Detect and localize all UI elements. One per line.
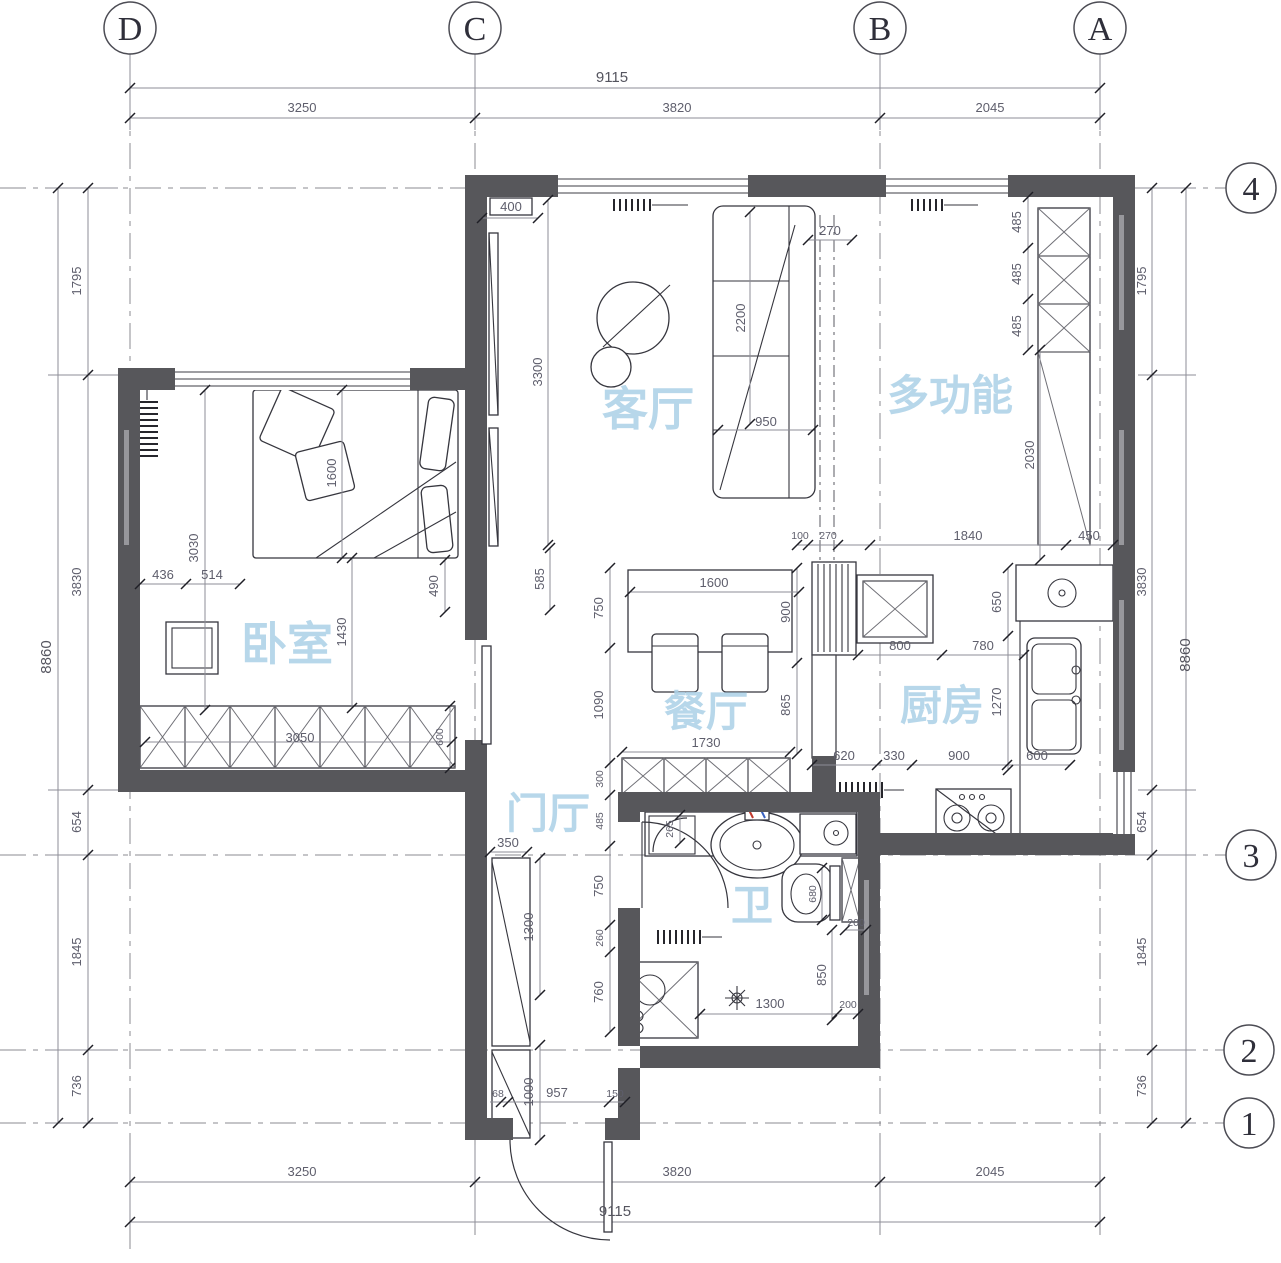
bedroom-sliding-door-icon (482, 646, 491, 744)
dim-tv-400: 400 (500, 199, 522, 214)
room-label-multi: 多功能 (887, 372, 1013, 419)
sofa-icon (713, 206, 815, 498)
bath-radiator-icon (658, 930, 722, 944)
dim-right-total: 8860 (1177, 638, 1194, 671)
dim-bed-490: 490 (426, 575, 441, 597)
dim-top-ba: 2045 (976, 100, 1005, 115)
room-label-living: 客厅 (602, 383, 694, 435)
dim-left-total: 8860 (38, 640, 55, 673)
dim-bed-585: 585 (532, 568, 547, 590)
dim-kitchen-650: 650 (989, 591, 1004, 613)
bath-cabinet-icon (842, 858, 860, 922)
dim-left-1845: 1845 (69, 938, 84, 967)
dim-right-736: 736 (1134, 1075, 1149, 1097)
dim-bath-265: 265 (664, 820, 676, 838)
dim-bath-750: 750 (591, 875, 606, 897)
grid-label-row-3: 3 (1243, 838, 1260, 875)
dim-right-3830: 3830 (1134, 568, 1149, 597)
dim-dining-865: 865 (778, 694, 793, 716)
floor-plan-drawing: D C B A 4 3 2 1 9115 3250 3820 2045 3250… (0, 0, 1281, 1263)
tv-panel-icon (489, 233, 498, 546)
dim-left-736: 736 (69, 1075, 84, 1097)
fridge-icon (857, 575, 933, 643)
living-window-icon (558, 175, 748, 211)
kitchen-window-icon (1113, 772, 1135, 834)
dim-bath-200b: 200 (839, 999, 857, 1011)
double-sink-icon (1027, 638, 1081, 754)
dim-entry-957: 957 (546, 1085, 568, 1100)
dim-kitchen-1270: 1270 (989, 688, 1004, 717)
dim-kitchen-330: 330 (883, 748, 905, 763)
dim-bath-260: 260 (594, 929, 606, 947)
dim-bed-3030: 3030 (186, 534, 201, 563)
dim-dining-300: 300 (594, 770, 606, 788)
dim-bath-1300: 1300 (756, 996, 785, 1011)
dim-bed-wardrobe-3050: 3050 (286, 730, 315, 745)
dim-entry-150: 150 (606, 1088, 624, 1100)
dim-bed-436: 436 (152, 567, 174, 582)
dim-bath-760: 760 (591, 981, 606, 1003)
dim-stub-100: 100 (791, 530, 809, 542)
bedroom-window-icon (175, 368, 410, 390)
dim-right-1845: 1845 (1134, 938, 1149, 967)
dim-hall-1000: 1000 (521, 1078, 536, 1107)
room-label-bath: 卫 (731, 882, 773, 929)
dim-multi-2030: 2030 (1022, 441, 1037, 470)
dim-left-654: 654 (69, 811, 84, 833)
dim-kitchen-620: 620 (833, 748, 855, 763)
dim-kitchen-600: 600 (1026, 748, 1048, 763)
dim-stub-270: 270 (819, 530, 837, 542)
dim-multi-1840: 1840 (954, 528, 983, 543)
dim-bath-680: 680 (807, 885, 819, 903)
bed-icon (253, 387, 458, 558)
sliding-door-icon (812, 562, 856, 655)
sideboard-icon (622, 758, 790, 794)
grid-label-col-b: B (869, 11, 892, 48)
dim-multi-485c: 485 (1009, 315, 1024, 337)
bedroom-desk-icon (166, 622, 218, 674)
dim-dining-1730: 1730 (692, 735, 721, 750)
grid-label-row-2: 2 (1241, 1033, 1258, 1070)
dim-bottom-ba: 2045 (976, 1164, 1005, 1179)
floor-plan-page: D C B A 4 3 2 1 9115 3250 3820 2045 3250… (0, 0, 1281, 1263)
grid-label-row-1: 1 (1241, 1106, 1258, 1143)
dim-entry-68: 68 (492, 1088, 504, 1100)
dim-kitchen-800: 800 (889, 638, 911, 653)
dim-dining-1600: 1600 (700, 575, 729, 590)
dim-dining-900: 900 (778, 601, 793, 623)
grid-label-col-d: D (118, 11, 143, 48)
room-label-dining: 餐厅 (664, 688, 748, 735)
dim-dining-1090: 1090 (591, 691, 606, 720)
floor-drain-icon (725, 986, 749, 1010)
dim-sofa-270: 270 (819, 223, 841, 238)
dim-right-654: 654 (1134, 811, 1149, 833)
grid-label-col-a: A (1088, 11, 1113, 48)
grid-label-row-4: 4 (1243, 171, 1260, 208)
dim-bath-200a: 200 (847, 917, 865, 929)
dim-bottom-total: 9115 (599, 1203, 631, 1220)
dim-top-dc: 3250 (288, 100, 317, 115)
room-label-kitchen: 厨房 (900, 682, 984, 729)
dim-sofa-950: 950 (755, 414, 777, 429)
dim-multi-450: 450 (1078, 528, 1100, 543)
room-label-hall: 门厅 (506, 790, 590, 837)
dim-bottom-cb: 3820 (663, 1164, 692, 1179)
dim-kitchen-780: 780 (972, 638, 994, 653)
dim-dining-485: 485 (594, 812, 606, 830)
dim-hall-350: 350 (497, 835, 519, 850)
multi-window-icon (886, 175, 1008, 211)
dim-hall-1300: 1300 (521, 913, 536, 942)
entry-door-icon (510, 1140, 612, 1240)
grid-label-col-c: C (464, 11, 487, 48)
dim-bed-1430: 1430 (334, 618, 349, 647)
dim-bed-514: 514 (201, 567, 223, 582)
dim-multi-485b: 485 (1009, 263, 1024, 285)
dim-living-3300: 3300 (530, 358, 545, 387)
dim-bottom-dc: 3250 (288, 1164, 317, 1179)
dim-bed-1600: 1600 (324, 459, 339, 488)
dim-left-3830: 3830 (69, 568, 84, 597)
multi-wardrobe-icon (1038, 208, 1090, 545)
dim-kitchen-900: 900 (948, 748, 970, 763)
dim-top-total: 9115 (596, 69, 628, 86)
dim-left-1795: 1795 (69, 267, 84, 296)
dim-multi-485a: 485 (1009, 211, 1024, 233)
dim-right-1795: 1795 (1134, 267, 1149, 296)
dim-sofa-2200: 2200 (733, 304, 748, 333)
dim-dining-750: 750 (591, 597, 606, 619)
dim-bath-850: 850 (814, 964, 829, 986)
dim-top-cb: 3820 (663, 100, 692, 115)
tea-table-icon (591, 282, 670, 387)
room-label-bedroom: 卧室 (241, 618, 333, 670)
dim-bed-600: 600 (434, 728, 446, 746)
